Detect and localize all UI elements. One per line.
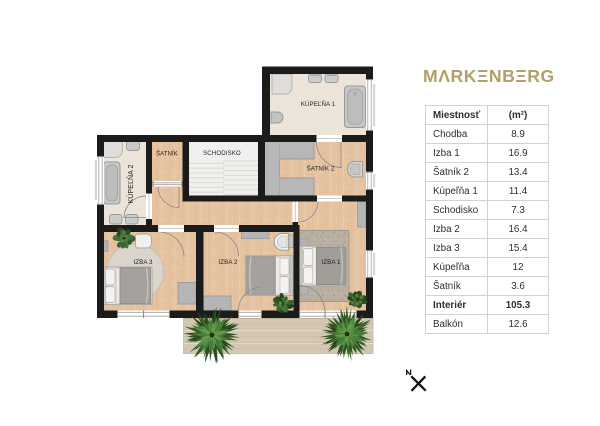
svg-text:KÚPEĽŇA 1: KÚPEĽŇA 1 xyxy=(301,101,336,108)
svg-text:ŠATNÍK 2: ŠATNÍK 2 xyxy=(307,166,335,173)
svg-text:KÚPEĽŇA 2: KÚPEĽŇA 2 xyxy=(126,164,135,203)
svg-text:IZBA 3: IZBA 3 xyxy=(133,259,153,266)
svg-text:IZBA 1: IZBA 1 xyxy=(321,259,341,266)
svg-text:SCHODISKO: SCHODISKO xyxy=(203,151,241,157)
svg-text:ŠATNÍK: ŠATNÍK xyxy=(156,151,178,158)
svg-text:IZBA 2: IZBA 2 xyxy=(218,259,238,266)
